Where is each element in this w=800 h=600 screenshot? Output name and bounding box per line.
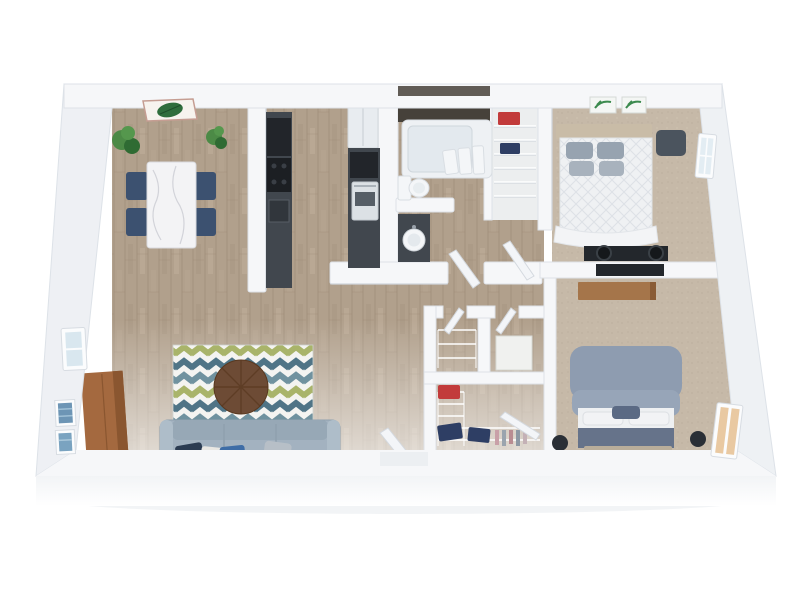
floorplan-image: [0, 0, 800, 600]
bedroom1-bench: [656, 130, 686, 156]
navy-basket-1: [437, 422, 463, 441]
dishwasher: [267, 118, 291, 156]
speaker-right: [690, 431, 706, 447]
floorplan-svg: [0, 0, 800, 600]
navy-bin: [500, 143, 520, 154]
towels: [442, 146, 484, 175]
bottom-wall-face: [36, 476, 776, 506]
range: [267, 158, 291, 192]
white-storage-box: [496, 336, 532, 370]
red-basket: [438, 385, 460, 399]
dining-leaf-art: [143, 99, 197, 121]
desk-stool-right: [649, 246, 663, 260]
floating-shelf: [578, 282, 656, 300]
cooktop: [350, 152, 378, 178]
faucet: [412, 225, 416, 229]
bed1-headboard: [556, 124, 652, 139]
entry-threshold: [380, 452, 428, 466]
bed2-blanket: [578, 428, 674, 448]
navy-basket-2: [467, 427, 490, 443]
red-bin: [498, 112, 520, 125]
desk-stool-left: [597, 246, 611, 260]
wall-tv: [596, 264, 664, 276]
living-room-window: [61, 327, 87, 370]
speaker-left: [552, 435, 568, 451]
bathroom-accent-top: [398, 86, 490, 96]
bedroom1-window: [695, 133, 717, 178]
kitchen-sink: [269, 200, 289, 222]
